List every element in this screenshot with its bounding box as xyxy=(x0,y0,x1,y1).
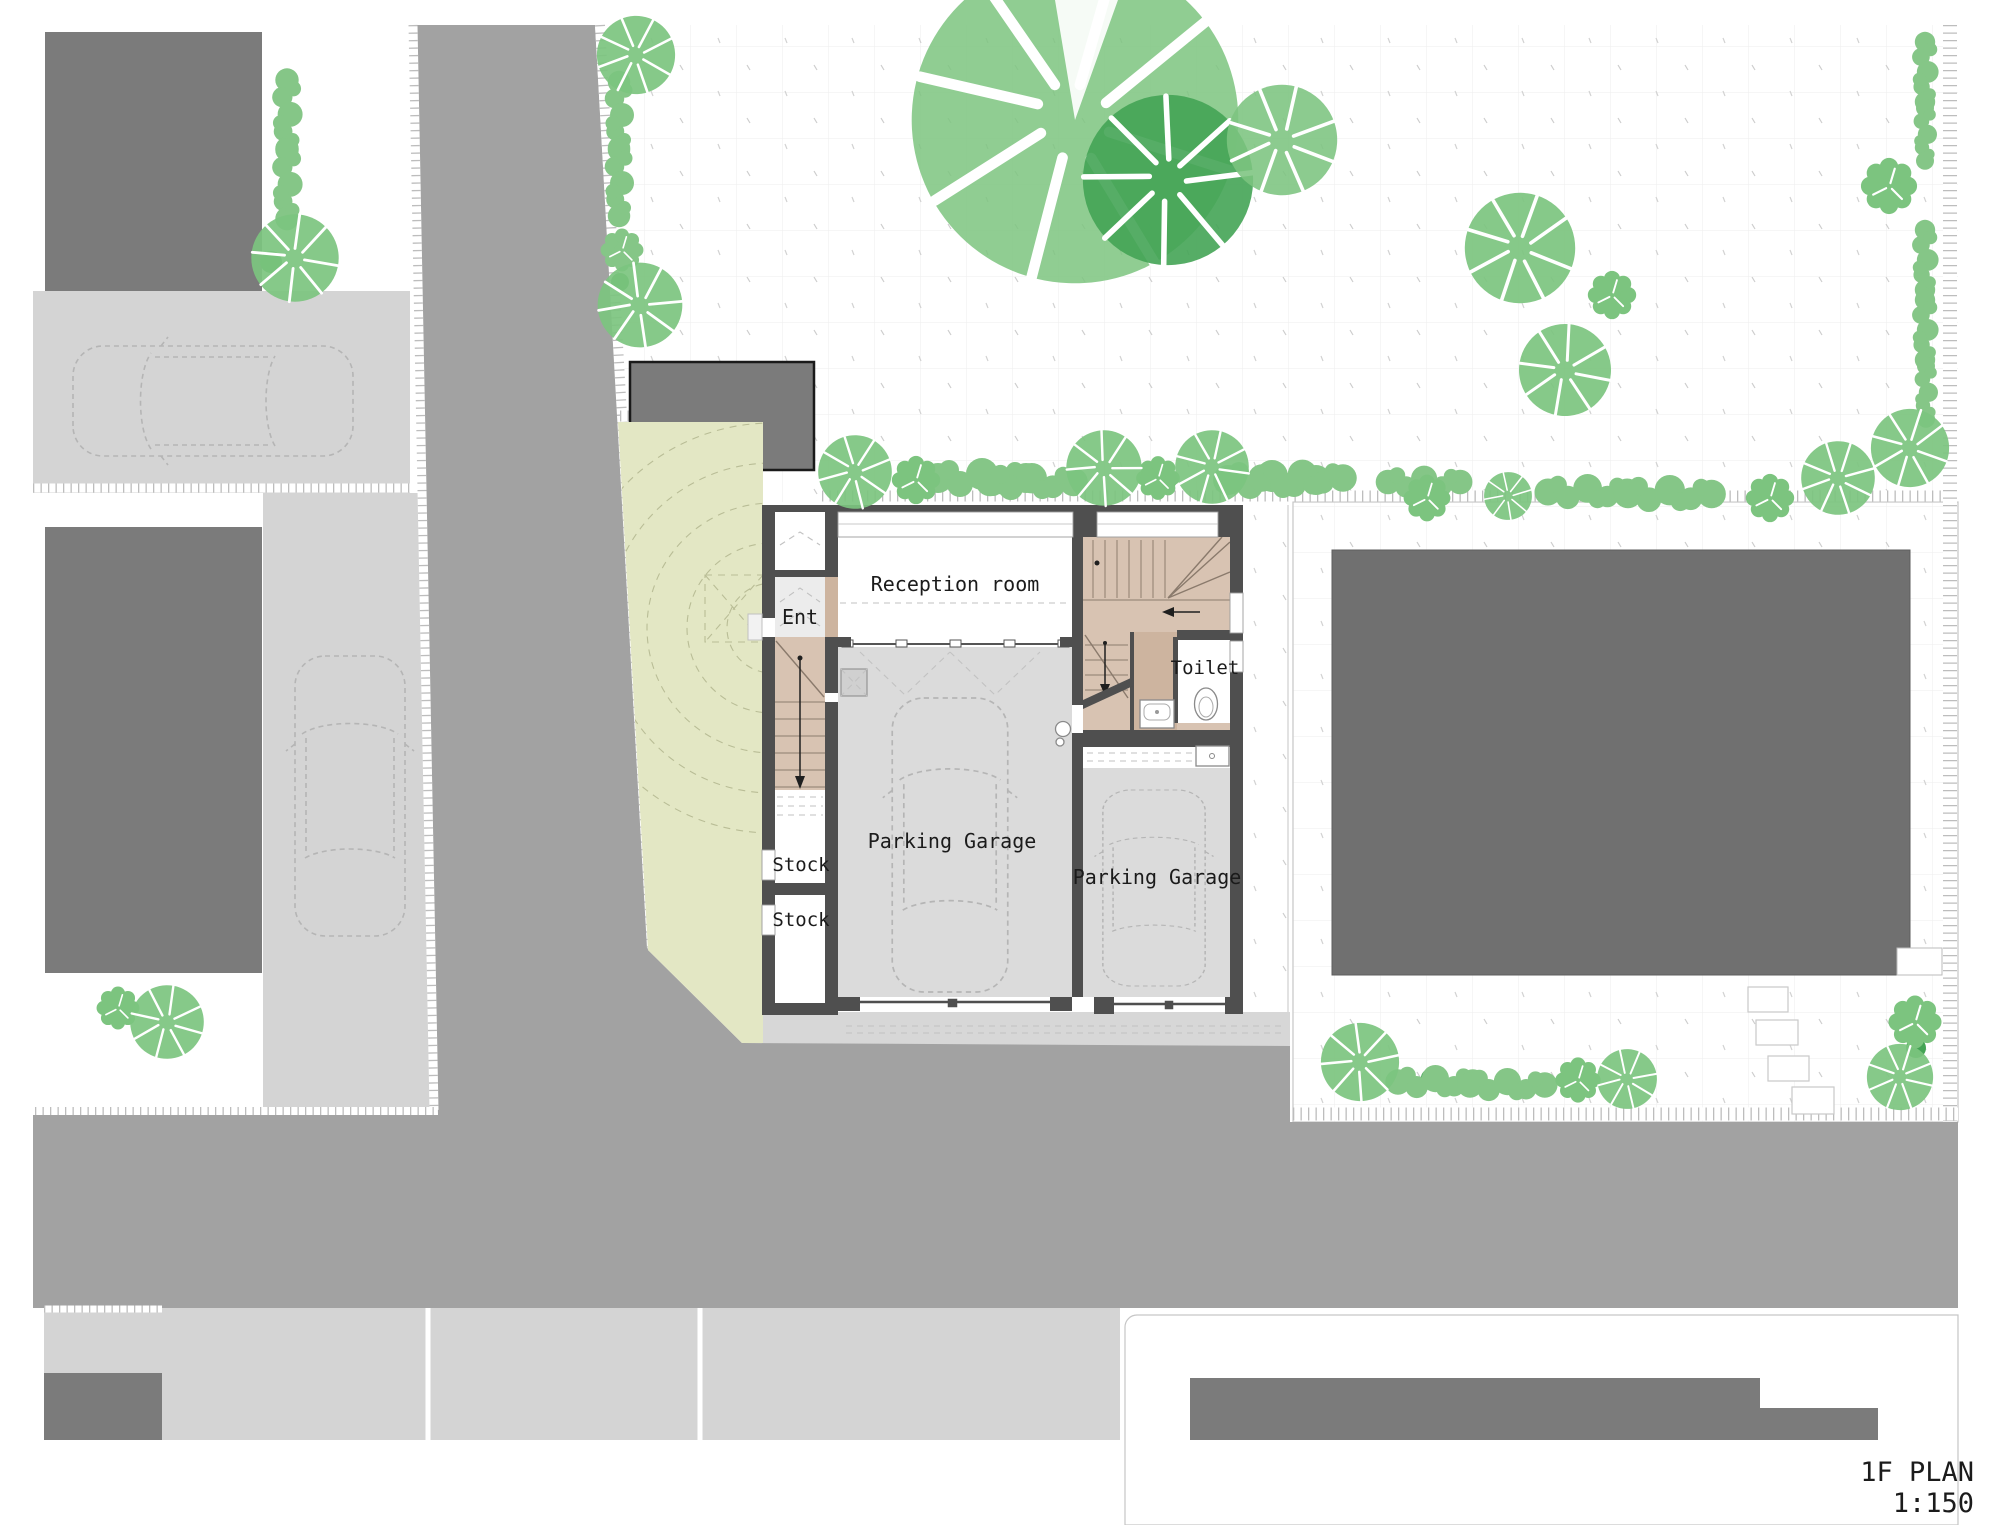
drawing-scale: 1:150 xyxy=(1893,1488,1974,1519)
neighbor-building-southwest xyxy=(44,1373,162,1440)
door-stop-small xyxy=(1056,738,1064,746)
garage-storage-strip xyxy=(1085,747,1195,767)
floor-plan-canvas: Reception room Ent Toilet Parking Garage… xyxy=(0,0,2000,1525)
label-toilet: Toilet xyxy=(1171,657,1240,679)
west-driveway xyxy=(263,493,437,1108)
label-entrance: Ent xyxy=(782,605,818,629)
door-stop-large xyxy=(1056,722,1071,737)
entrance-closet xyxy=(775,512,825,572)
label-parking-garage-second: Parking Garage xyxy=(1073,865,1242,889)
toilet-bowl xyxy=(1195,688,1218,720)
counter-unit xyxy=(1196,746,1229,766)
east-side-yard xyxy=(1243,505,1288,1046)
label-stock-upper: Stock xyxy=(772,854,830,876)
entrance-step xyxy=(825,577,838,637)
neighbor-building-east xyxy=(1332,550,1942,975)
neighbor-building-northwest xyxy=(45,32,262,291)
garage-apron xyxy=(762,1012,1290,1048)
site-plan-drawing: Reception room Ent Toilet Parking Garage… xyxy=(0,0,2000,1525)
room-parking-garage-main-floor xyxy=(838,647,1072,997)
understair-storage xyxy=(775,790,825,830)
label-parking-garage-main: Parking Garage xyxy=(868,829,1037,853)
entrance-door-opening xyxy=(762,618,775,637)
label-stock-lower: Stock xyxy=(772,909,830,931)
drawing-title: 1F PLAN xyxy=(1860,1457,1974,1488)
label-reception-room: Reception room xyxy=(871,572,1040,596)
entrance-porch-step xyxy=(748,614,762,640)
neighbor-building-west xyxy=(45,527,262,973)
southwest-pavement-strip xyxy=(44,1306,1120,1440)
